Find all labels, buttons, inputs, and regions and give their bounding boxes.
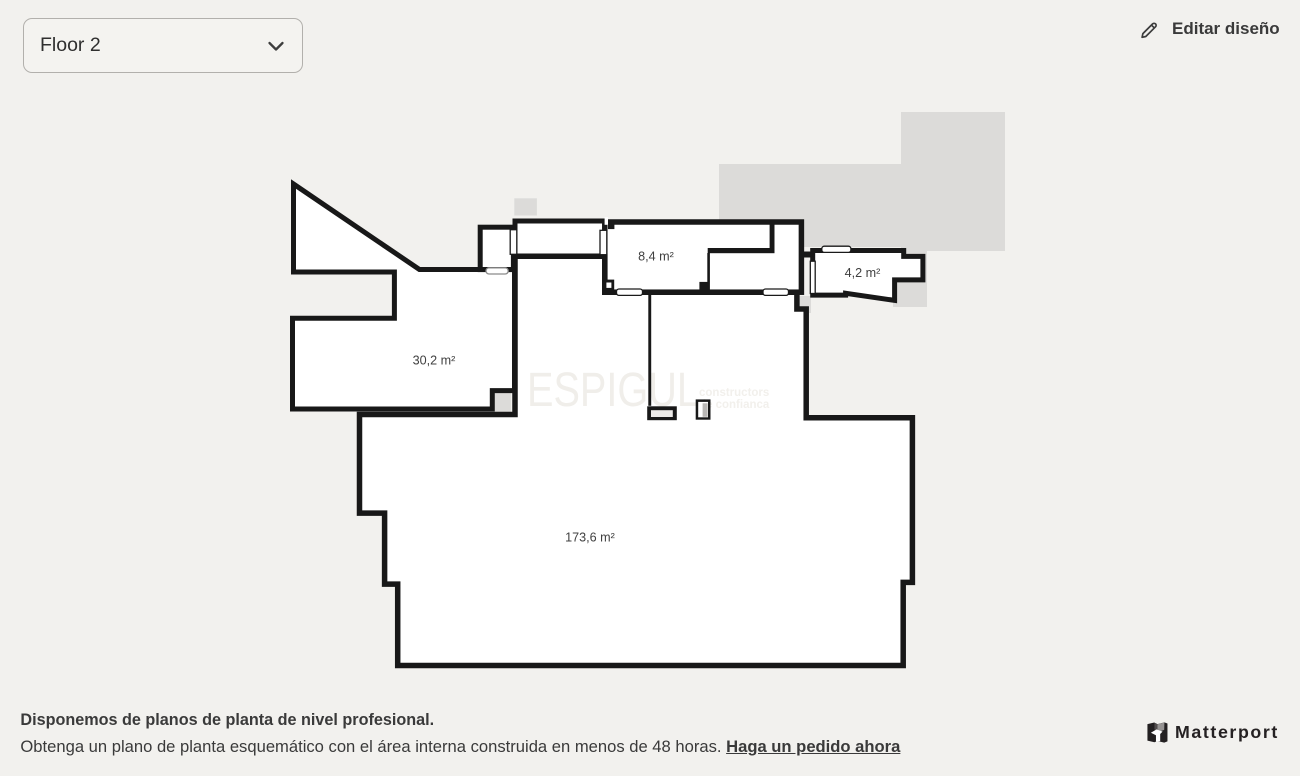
svg-text:173,6 m²: 173,6 m² xyxy=(565,531,615,545)
svg-text:30,2 m²: 30,2 m² xyxy=(413,354,456,368)
svg-text:4,2 m²: 4,2 m² xyxy=(845,266,881,280)
svg-text:constructors: constructors xyxy=(699,387,769,399)
svg-text:8,4 m²: 8,4 m² xyxy=(638,250,674,264)
